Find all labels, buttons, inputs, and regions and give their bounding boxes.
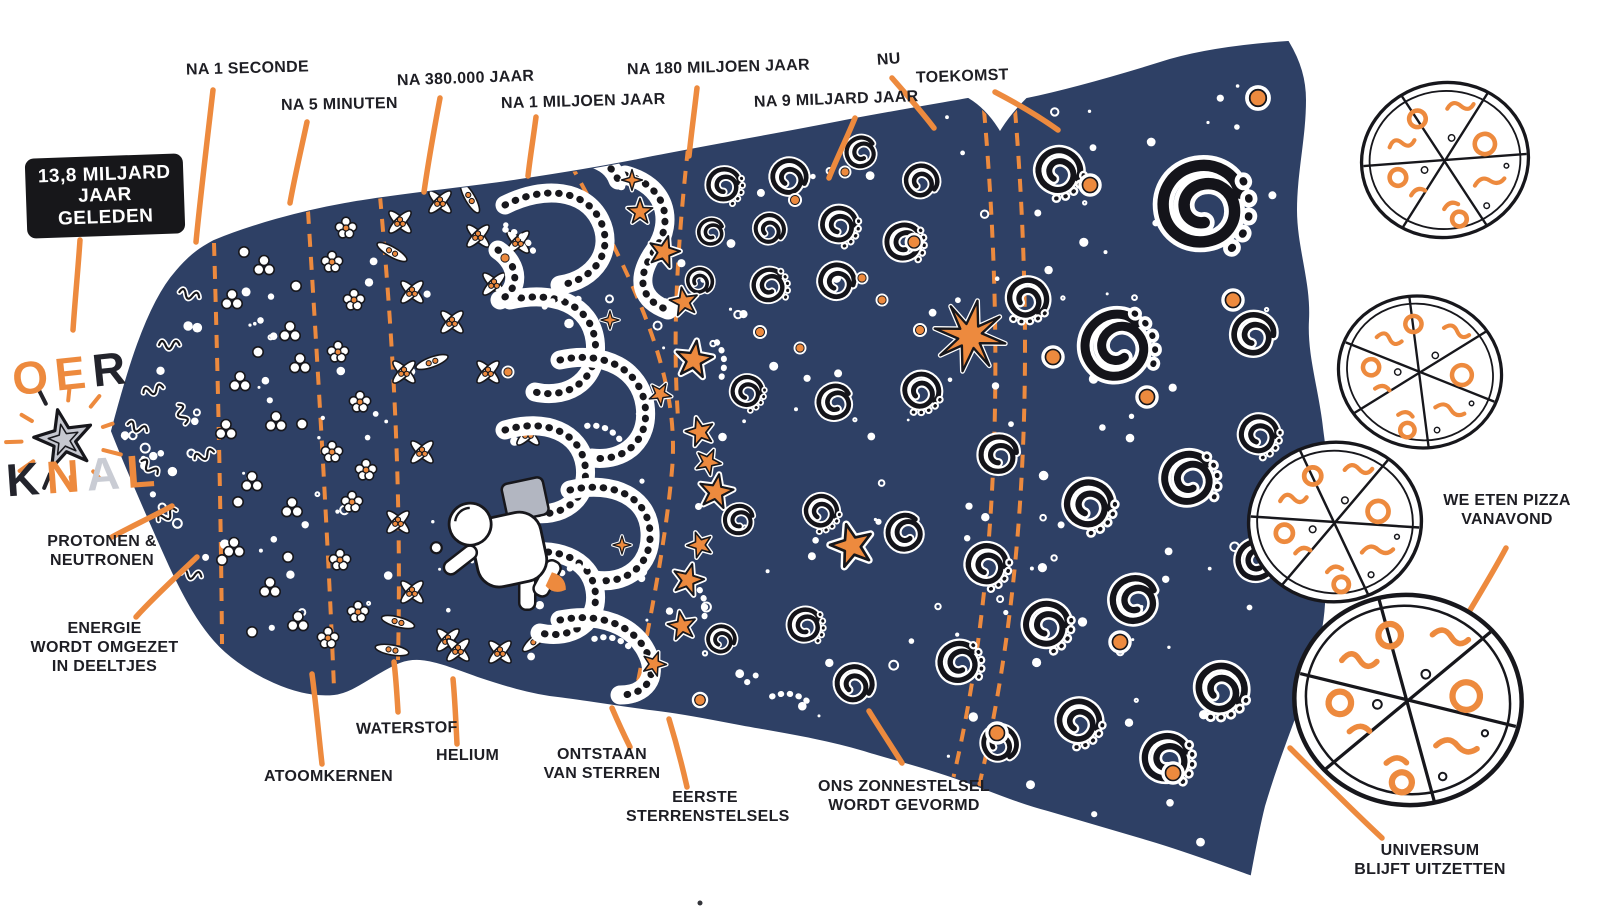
pizza-icon: [1322, 278, 1518, 465]
label-atomic-nuclei: ATOOMKERNEN: [264, 768, 393, 787]
big-bang-word-oer: OER: [10, 344, 135, 402]
big-bang-timeline-poster: NA 1 SECONDE NA 5 MINUTEN NA 380.000 JAA…: [0, 0, 1600, 920]
era-label-now: NU: [876, 50, 901, 70]
label-hydrogen: WATERSTOF: [356, 719, 458, 740]
origin-time-box: 13,8 MILJARD JAAR GELEDEN: [25, 153, 186, 238]
era-label-after-1-second: NA 1 SECONDE: [186, 58, 309, 80]
era-label-future: TOEKOMST: [916, 66, 1009, 88]
big-bang-word-knal: KNAL: [5, 447, 164, 504]
stray-mark: [698, 901, 703, 906]
timeline-illustration: [0, 0, 1600, 920]
label-protons-neutrons: PROTONEN & NEUTRONEN: [38, 533, 166, 571]
label-first-galaxies: EERSTE STERRENSTELSELS: [626, 789, 784, 827]
label-helium: HELIUM: [436, 747, 499, 766]
label-star-formation: ONTSTAAN VAN STERREN: [538, 746, 666, 784]
era-label-after-5-minutes: NA 5 MINUTEN: [281, 95, 398, 116]
label-solar-system: ONS ZONNESTELSEL WORDT GEVORMD: [815, 778, 993, 816]
label-energy-to-particles: ENERGIE WORDT OMGEZET IN DEELTJES: [22, 620, 187, 677]
label-pizza-tonight: WE ETEN PIZZA VANAVOND: [1427, 492, 1587, 530]
pizza-icon: [1347, 67, 1543, 254]
label-universe-expands: UNIVERSUM BLIJFT UITZETTEN: [1350, 842, 1510, 880]
